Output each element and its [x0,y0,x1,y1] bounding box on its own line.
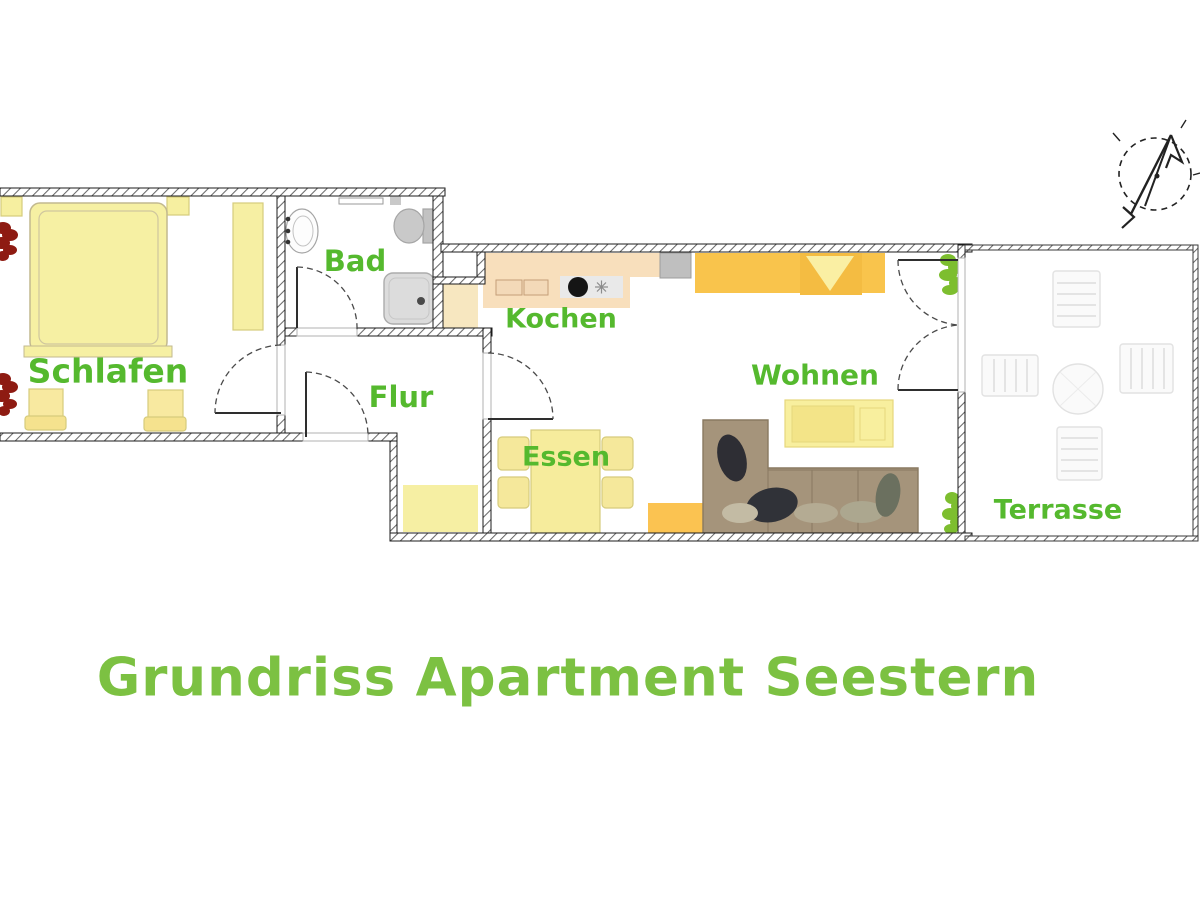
room-label-bad: Bad [324,244,386,278]
bath-sink [286,209,318,253]
orange-rug [648,503,703,533]
bedroom-furniture [0,197,263,431]
room-label-kochen: Kochen [505,304,617,335]
room-label-essen: Essen [522,442,610,473]
terrace-furniture [982,271,1173,480]
bath-accessory [390,196,401,205]
terrace-wall-bottom [965,536,1198,541]
page-title: Grundriss Apartment Seestern [97,648,1040,709]
cooktop-burner [568,277,588,297]
red-plant-top [0,222,18,261]
room-label-wohnen: Wohnen [751,359,879,392]
terrace-chair-right [1120,344,1173,393]
sofa-pillow-light [794,503,838,523]
terrace-wall-top [965,245,1198,250]
room-label-terrasse: Terrasse [994,495,1122,526]
bath-shelf [339,198,383,204]
bedroom-chair-right [144,390,186,431]
dining-chair [498,477,529,508]
double-bed [30,203,167,352]
fridge [660,253,691,278]
red-plant-bottom [0,373,18,416]
floorplan-page: Schlafen Bad Flur Kochen Wohnen Essen Te… [0,0,1200,900]
kitchen-tall-cabinet [443,284,478,328]
floorplan-svg: Schlafen Bad Flur Kochen Wohnen Essen Te… [0,0,1200,900]
room-label-schlafen: Schlafen [28,352,189,391]
entrance-door-opening [303,433,368,441]
dining-chair [602,477,633,508]
entrance-door [306,372,368,437]
terrace-chair-bottom [1057,427,1102,480]
bedroom-door [215,345,281,413]
sofa-bed [695,253,885,295]
wardrobe [233,203,263,330]
living-door-opening [483,353,491,419]
bedroom-chair-left [25,389,66,430]
terrace-chair-left [982,355,1038,396]
north-compass-icon [1113,120,1200,228]
kitchen-counter-top [483,253,664,277]
terrace-wall-right [1193,245,1198,541]
nightstand-right [167,197,189,215]
room-label-flur: Flur [369,380,434,414]
terrace-door-opening [958,258,965,392]
coffee-table [785,400,893,447]
living-room-door [488,353,553,419]
toilet [394,209,434,243]
bathroom-door-opening [297,328,357,336]
sofa-pillow-light [722,503,758,523]
terrace-chair-top [1053,271,1100,327]
bedroom-door-opening [277,345,285,415]
nightstand-left [1,197,22,216]
kitchen-sink [496,280,548,295]
hallway-rug [403,485,478,532]
